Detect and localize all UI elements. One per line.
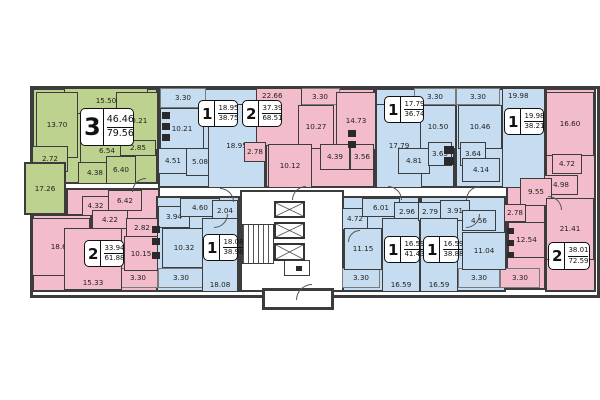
room-area-label: 16.60 — [560, 120, 581, 127]
apartment-areas: 17.7936.74 — [401, 97, 427, 122]
room-area-label: 10.50 — [428, 123, 449, 130]
apartment-badge: 238.0172.59 — [548, 242, 590, 270]
room-area-label: 10.15 — [131, 250, 152, 257]
room-area-label: 3.91 — [447, 207, 463, 214]
room: 19.98 — [502, 88, 545, 188]
total-area: 38.98 — [223, 248, 243, 257]
living-area: 33.94 — [104, 244, 124, 254]
plumbing-fixture-icon — [162, 112, 170, 119]
room: 10.12 — [268, 144, 312, 188]
apartment-areas: 38.0172.59 — [565, 243, 591, 269]
apartment-badge: 118.9538.75 — [198, 100, 238, 127]
room-area-label: 12.54 — [516, 236, 537, 243]
room-area-label: 6.54 — [99, 147, 115, 154]
total-area: 38.21 — [524, 122, 544, 131]
room-area-label: 17.26 — [35, 185, 56, 192]
room-area-label: 3.30 — [512, 274, 528, 281]
room-area-label: 4.39 — [327, 153, 343, 160]
plumbing-fixture-icon — [507, 228, 514, 234]
room-area-label: 3.30 — [173, 274, 189, 281]
room-area-label: 3.30 — [427, 93, 443, 100]
elevator-shaft — [274, 243, 305, 261]
apartment-areas: 46.4679.56 — [104, 109, 137, 145]
room-area-label: 16.59 — [391, 281, 412, 291]
apartment-rooms-count: 2 — [549, 243, 565, 269]
apartment-areas: 37.3968.51 — [259, 101, 285, 126]
balcony: 3.30 — [500, 268, 540, 288]
living-area: 18.08 — [223, 238, 243, 248]
living-area: 16.59 — [404, 240, 424, 250]
room: 2.78 — [244, 142, 266, 162]
room: 2.78 — [504, 204, 526, 222]
room-area-label: 3.64 — [465, 150, 481, 157]
room-area-label: 16.59 — [429, 281, 450, 291]
apartment-areas: 18.0838.98 — [220, 235, 246, 260]
total-area: 41.43 — [404, 250, 424, 259]
plumbing-fixture-icon — [162, 134, 170, 141]
room: 11.04 — [462, 232, 506, 270]
room-area-label: 10.32 — [174, 244, 195, 251]
plumbing-fixture-icon — [507, 252, 514, 258]
room-area-label: 4.51 — [165, 157, 181, 164]
elevator-shaft — [274, 222, 305, 239]
room-area-label: 6.40 — [113, 166, 129, 173]
plumbing-fixture-icon — [152, 226, 160, 233]
balcony: 3.30 — [300, 88, 340, 105]
living-area: 18.95 — [218, 104, 238, 114]
plumbing-fixture-icon — [348, 141, 356, 148]
room-area-label: 19.98 — [503, 89, 529, 99]
room-area-label: 4.72 — [347, 215, 363, 222]
room-area-label: 15.50 — [96, 97, 117, 104]
living-area: 46.46 — [107, 114, 134, 128]
floor-plan: 15.5013.7010.212.7217.266.542.854.386.40… — [0, 0, 600, 400]
apartment-badge: 116.5941.43 — [384, 236, 420, 263]
room-area-label: 2.79 — [422, 208, 438, 215]
apartment-badge: 116.5938.88 — [423, 236, 459, 263]
room: 4.39 — [320, 144, 350, 170]
room-area-label: 3.30 — [130, 274, 146, 281]
plumbing-fixture-icon — [444, 146, 454, 154]
apartment-areas: 33.9461.88 — [101, 241, 127, 266]
apartment-rooms-count: 1 — [385, 237, 401, 262]
room-area-label: 21.41 — [560, 225, 581, 232]
apartment-rooms-count: 1 — [199, 101, 215, 126]
living-area: 16.59 — [443, 240, 463, 250]
plumbing-fixture-icon — [152, 238, 160, 245]
balcony: 3.30 — [458, 268, 500, 288]
room: 10.27 — [298, 105, 334, 149]
room: 6.40 — [106, 156, 136, 184]
total-area: 36.74 — [404, 110, 424, 119]
apartment-badge: 346.4679.56 — [80, 108, 134, 146]
room-area-label: 3.30 — [175, 94, 191, 101]
apartment-rooms-count: 2 — [85, 241, 101, 266]
plumbing-fixture-icon — [152, 252, 160, 259]
room-area-label: 4.81 — [406, 157, 422, 164]
room-area-label: 4.98 — [553, 181, 569, 188]
elevator-shaft — [274, 201, 305, 218]
apartment-badge: 237.3968.51 — [242, 100, 282, 127]
room: 14.73 — [336, 92, 376, 150]
total-area: 79.56 — [107, 128, 134, 141]
room-area-label: 5.08 — [192, 158, 208, 165]
room: 10.32 — [162, 228, 206, 268]
room-area-label: 2.85 — [130, 144, 146, 151]
plumbing-fixture-icon — [507, 240, 514, 246]
room-area-label: 10.27 — [306, 123, 327, 130]
room-area-label: 10.21 — [172, 125, 193, 132]
room: 17.26 — [24, 162, 66, 215]
room-area-label: 15.33 — [83, 279, 104, 289]
room-area-label: 2.82 — [134, 224, 150, 231]
apartment-badge: 117.7936.74 — [384, 96, 424, 123]
apartment-badge: 118.0838.98 — [203, 234, 238, 261]
apartment-rooms-count: 2 — [243, 101, 259, 126]
room-area-label: 4.38 — [87, 169, 103, 176]
apartment-rooms-count: 3 — [81, 109, 104, 145]
total-area: 38.75 — [218, 114, 238, 123]
plumbing-fixture-icon — [296, 266, 302, 271]
room-area-label: 4.60 — [192, 204, 208, 211]
staircase — [242, 224, 274, 264]
balcony: 3.30 — [118, 268, 158, 288]
room-area-label: 4.72 — [559, 160, 575, 167]
living-area: 38.01 — [568, 246, 588, 256]
room-area-label: 3.30 — [353, 274, 369, 281]
total-area: 38.88 — [443, 250, 463, 259]
apartment-rooms-count: 1 — [505, 109, 521, 134]
room-area-label: 3.30 — [471, 274, 487, 281]
room-area-label: 6.01 — [373, 204, 389, 211]
room: 4.72 — [552, 154, 582, 174]
room: 6.42 — [108, 190, 142, 211]
apartment-areas: 19.9838.21 — [521, 109, 547, 134]
room-area-label: 14.73 — [346, 117, 367, 124]
room-area-label: 10.12 — [280, 162, 301, 169]
total-area: 68.51 — [262, 114, 282, 123]
room-area-label: 2.96 — [399, 208, 415, 215]
apartment-badge: 119.9838.21 — [504, 108, 544, 135]
apartment-rooms-count: 1 — [424, 237, 440, 262]
room-area-label: 3.30 — [312, 93, 328, 100]
room: 4.22 — [92, 210, 128, 229]
living-area: 19.98 — [524, 112, 544, 122]
room: 4.51 — [158, 148, 188, 174]
living-area: 17.79 — [404, 100, 424, 110]
room-area-label: 22.66 — [257, 89, 283, 99]
room-area-label: 11.15 — [353, 245, 374, 252]
room: 4.14 — [462, 158, 500, 182]
apartment-rooms-count: 1 — [204, 235, 220, 260]
plumbing-fixture-icon — [162, 123, 170, 130]
apartment-rooms-count: 1 — [385, 97, 401, 122]
room-area-label: 2.78 — [507, 209, 523, 216]
plumbing-fixture-icon — [444, 157, 454, 165]
balcony: 3.30 — [158, 268, 204, 288]
apartment-badge: 233.9461.88 — [84, 240, 124, 267]
apartment-areas: 18.9538.75 — [215, 101, 241, 126]
room-area-label: 2.78 — [247, 148, 263, 155]
apartment-areas: 16.5938.88 — [440, 237, 466, 262]
total-area: 61.88 — [104, 254, 124, 263]
room-area-label: 9.55 — [528, 188, 544, 195]
room-area-label: 4.14 — [473, 166, 489, 173]
room-area-label: 3.56 — [354, 153, 370, 160]
room-area-label: 11.04 — [474, 247, 495, 254]
balcony: 3.30 — [456, 88, 500, 105]
room-area-label: 18.08 — [210, 281, 231, 291]
living-area: 37.39 — [262, 104, 282, 114]
room-area-label: 4.22 — [102, 216, 118, 223]
balcony: 3.30 — [342, 268, 380, 288]
room-area-label: 13.70 — [47, 121, 68, 128]
room: 16.60 — [546, 92, 594, 156]
room-area-label: 10.46 — [470, 123, 491, 130]
total-area: 72.59 — [568, 257, 588, 266]
room-area-label: 6.42 — [117, 197, 133, 204]
plumbing-fixture-icon — [348, 130, 356, 137]
room-area-label: 3.30 — [470, 93, 486, 100]
room: 4.81 — [398, 148, 430, 174]
room-area-label: 4.32 — [87, 202, 103, 209]
